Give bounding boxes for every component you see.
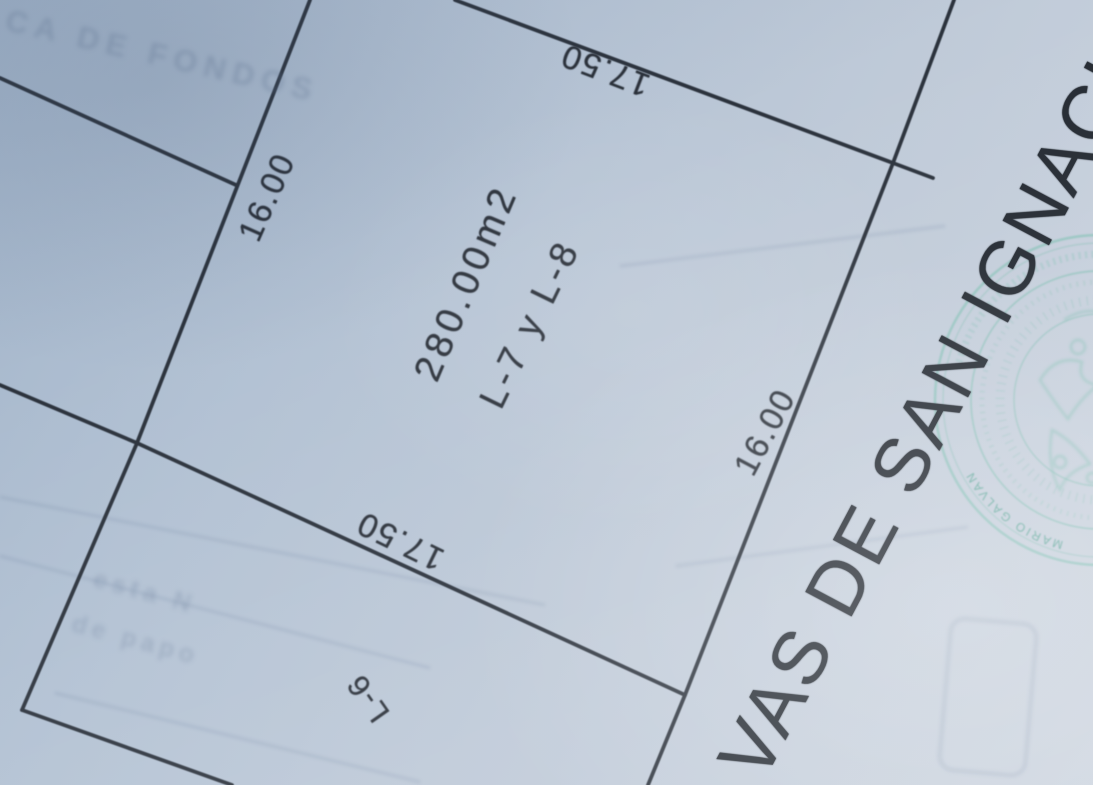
boundary-divider-upper-left [0, 78, 236, 185]
boundary-line-top [455, 0, 933, 178]
boundary-line-lower-parcel [22, 710, 232, 785]
photographed-survey-plan: MARIO GALVAN 17.50 16.00 16.00 17.50 280… [0, 0, 1093, 785]
boundary-line-bottom [0, 385, 685, 695]
